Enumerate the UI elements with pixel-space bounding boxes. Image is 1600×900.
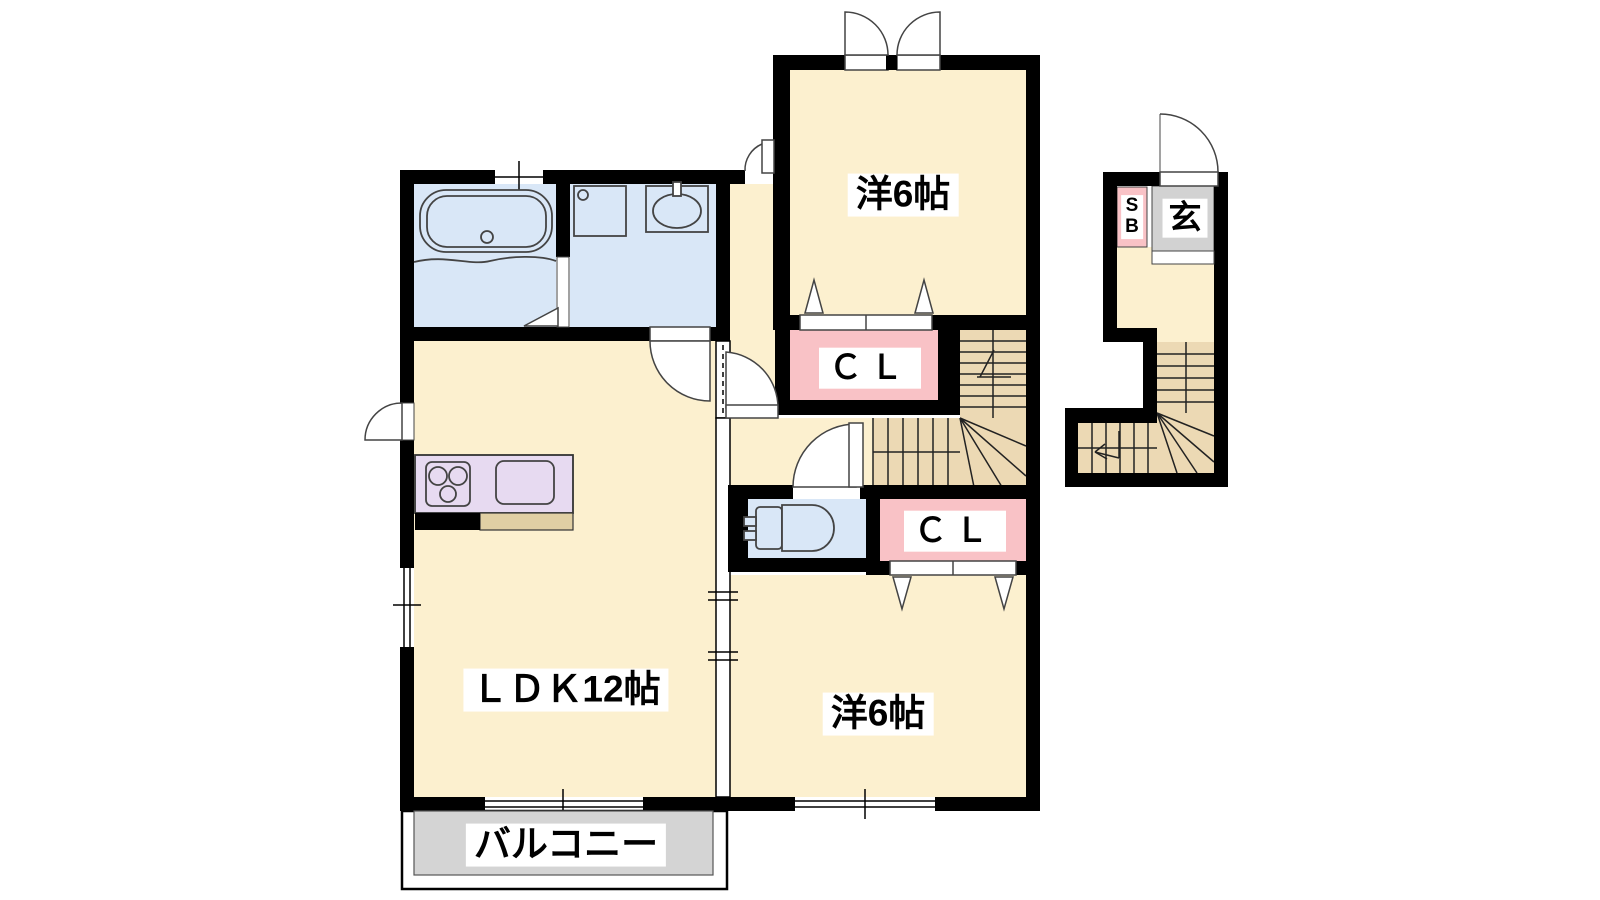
floor-plan-canvas: 洋6帖 ＣＬ ＣＬ ＬＤＫ12帖 洋6帖 バルコニー 玄 S B xyxy=(0,0,1600,900)
room-label-ldk: ＬＤＫ12帖 xyxy=(463,669,668,712)
kitchen-counter xyxy=(415,455,573,530)
floor-plan-drawing xyxy=(0,0,1600,900)
toilet-icon xyxy=(744,505,834,551)
room-label-shoe-box: S B xyxy=(1121,195,1143,239)
room-label-closet-top: ＣＬ xyxy=(819,348,921,389)
washing-machine-pan-icon xyxy=(574,186,626,236)
room-label-balcony: バルコニー xyxy=(466,824,666,867)
room-label-entrance: 玄 xyxy=(1163,199,1208,238)
vanity-sink-icon xyxy=(646,182,708,232)
room-label-bedroom-top: 洋6帖 xyxy=(848,174,959,217)
room-label-closet-bottom: ＣＬ xyxy=(904,511,1006,552)
room-label-bedroom-bottom: 洋6帖 xyxy=(823,693,934,736)
